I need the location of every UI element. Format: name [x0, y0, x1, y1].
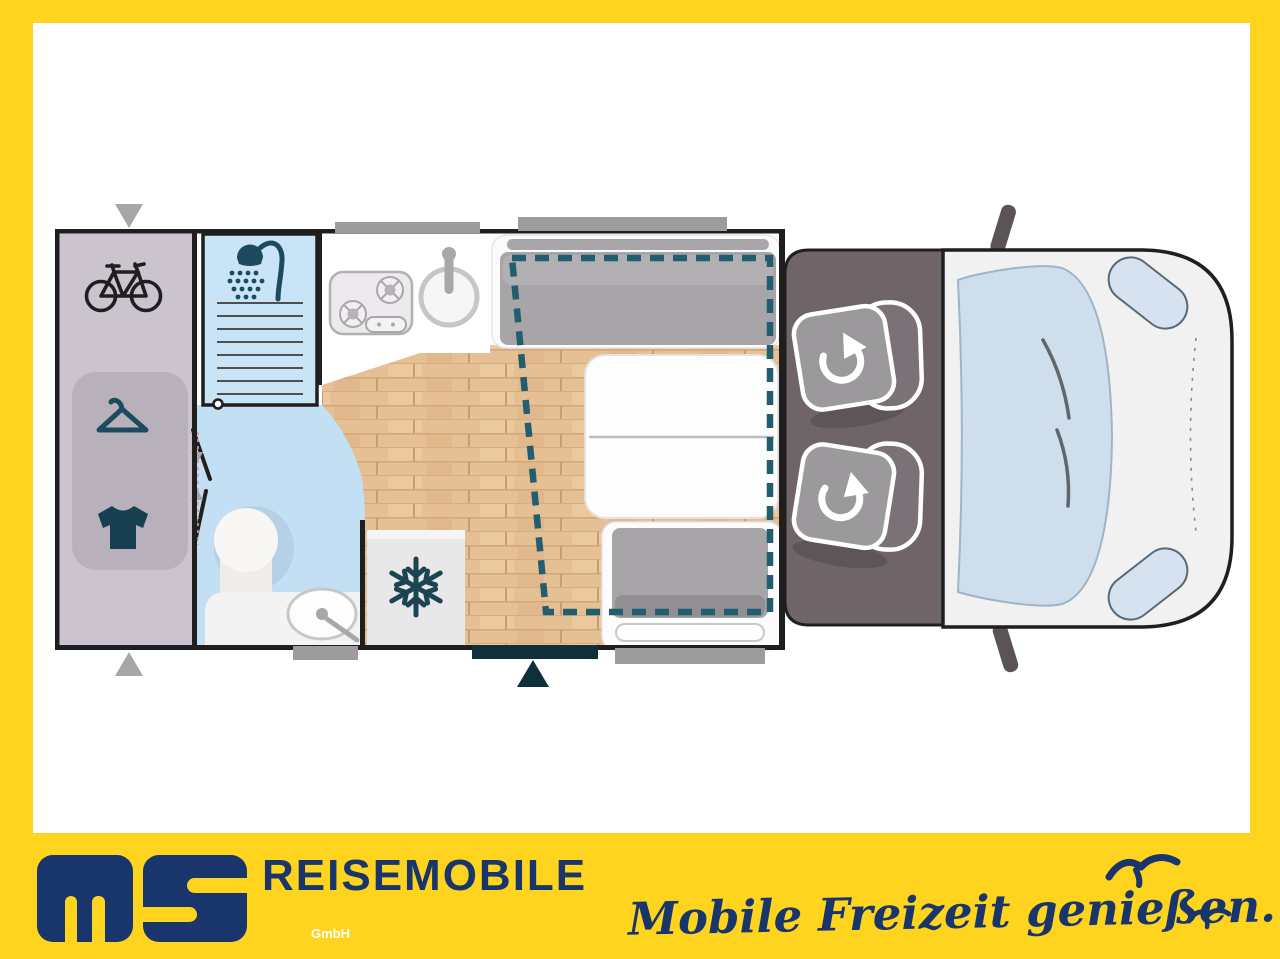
- garage-door-arrow-bottom: [115, 652, 143, 676]
- entrance-door-marker: [472, 645, 598, 687]
- mirror-icon-top: [989, 203, 1018, 255]
- cab: [785, 250, 943, 625]
- dinette-table: [585, 355, 778, 518]
- bird-icon-large: [1103, 853, 1183, 889]
- windshield: [958, 266, 1112, 605]
- bathroom-service-marker: [293, 646, 358, 660]
- logo-letter-m: [37, 855, 133, 942]
- page: { "brand": { "logo_text": "ms", "logo_su…: [0, 0, 1280, 959]
- fridge: [367, 530, 465, 646]
- shower-cubicle: [203, 234, 317, 409]
- entrance-door-arrow: [517, 660, 549, 687]
- brand-title: REISEMOBILE: [262, 851, 587, 901]
- garage-door-arrow-top: [115, 204, 143, 228]
- logo-gmbh-label: GmbH: [311, 926, 350, 941]
- bench-seat-rear: [602, 522, 782, 650]
- dinette-window-marker-bottom: [615, 648, 765, 664]
- kitchen-window-marker: [335, 222, 480, 233]
- rear-garage: [59, 233, 192, 645]
- vehicle-front: [943, 203, 1232, 674]
- logo-letter-s: GmbH: [143, 855, 247, 942]
- dinette-window-marker-top: [518, 217, 727, 231]
- washbasin: [205, 589, 365, 646]
- bird-icon-small: [1185, 905, 1233, 931]
- mirror-icon-bottom: [991, 622, 1020, 674]
- ms-logo: GmbH: [37, 855, 247, 942]
- brand-tagline: Mobile Freizeit genießen.: [628, 879, 1277, 946]
- hob-icon: [330, 272, 412, 334]
- bench-seat-front: [492, 235, 780, 348]
- brand-band: GmbH REISEMOBILE Mobile Freizeit genieße…: [0, 833, 1280, 959]
- floorplan-diagram: [0, 0, 1280, 959]
